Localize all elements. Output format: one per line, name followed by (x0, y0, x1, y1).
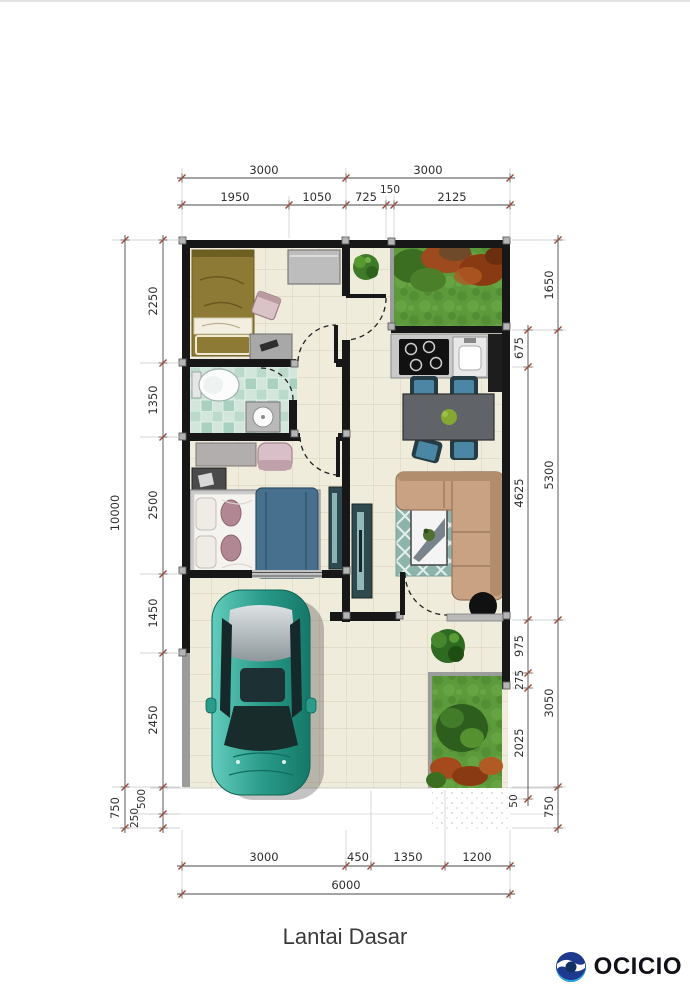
dim-top-inner-0: 1950 (220, 190, 249, 204)
dim-left-inner-2: 2500 (146, 490, 160, 519)
top-border-line (0, 0, 690, 2)
dim-left-inner-4: 2450 (146, 705, 160, 734)
dim-left-outer-0: 10000 (108, 495, 122, 532)
garage (206, 590, 324, 800)
low-wall (182, 653, 190, 787)
dim-right-outer-3: 750 (542, 796, 556, 818)
rear-window (226, 605, 296, 662)
dim-bottom-inner-3: 1200 (462, 850, 491, 864)
dim-top-inner-2: 725 (355, 190, 377, 204)
dining-chair (450, 438, 478, 460)
brand-logo: OCICIO (555, 951, 682, 983)
dim-bottom-inner-0: 3000 (249, 850, 278, 864)
dim-right-outer-0: 1650 (542, 270, 556, 299)
window (252, 570, 322, 578)
dim-top-inner-4: 2125 (437, 190, 466, 204)
brand-logo-icon (555, 951, 587, 983)
dim-right-inner-4: 2025 (512, 728, 526, 757)
entry-plant (353, 254, 379, 280)
floor-plan-drawing: 3000 3000 1950 1050 725 150 2125 3000 45… (0, 0, 690, 1000)
front-garden (390, 243, 509, 330)
dim-bottom-outer-0: 6000 (331, 878, 360, 892)
sunroof (240, 668, 285, 702)
counter-dark (488, 334, 502, 392)
dim-top-outer-0: 3000 (249, 163, 278, 177)
dim-bottom-inner-2: 1350 (393, 850, 422, 864)
dim-top-outer-1: 3000 (413, 163, 442, 177)
brand-logo-text: OCICIO (594, 953, 682, 981)
windshield (224, 706, 298, 751)
dim-top-inner-3: 150 (380, 184, 400, 196)
back-garden (426, 672, 503, 788)
dim-left-inner-0: 2250 (146, 286, 160, 315)
bed-double (190, 488, 320, 578)
dim-top-inner-1: 1050 (302, 190, 331, 204)
floor-plan-page: 3000 3000 1950 1050 725 150 2125 3000 45… (0, 0, 690, 1000)
dim-left-outer-1: 750 (108, 797, 122, 819)
paving (432, 788, 510, 830)
dim-left-inner-5: 500 (136, 789, 148, 809)
dim-right-inner-5: 50 (508, 794, 520, 807)
dresser (196, 443, 256, 466)
dim-left-inner-1: 1350 (146, 385, 160, 414)
dim-right-outer-1: 5300 (542, 460, 556, 489)
dim-right-inner-3: 275 (514, 670, 526, 690)
dim-bottom-inner-1: 450 (347, 850, 369, 864)
dim-right-outer-2: 3050 (542, 688, 556, 717)
dim-left-inner-6: 250 (129, 808, 141, 828)
terrace-threshold (447, 614, 503, 621)
dim-right-inner-0: 675 (512, 337, 526, 359)
dim-right-inner-1: 4625 (512, 478, 526, 507)
terrace-plant (431, 629, 465, 663)
car (206, 590, 316, 795)
dim-right-inner-2: 975 (512, 635, 526, 657)
garden-border (390, 248, 394, 330)
dim-left-inner-3: 1450 (146, 598, 160, 627)
page-title: Lantai Dasar (0, 924, 690, 950)
centerpiece (441, 409, 457, 425)
plan (120, 237, 570, 832)
